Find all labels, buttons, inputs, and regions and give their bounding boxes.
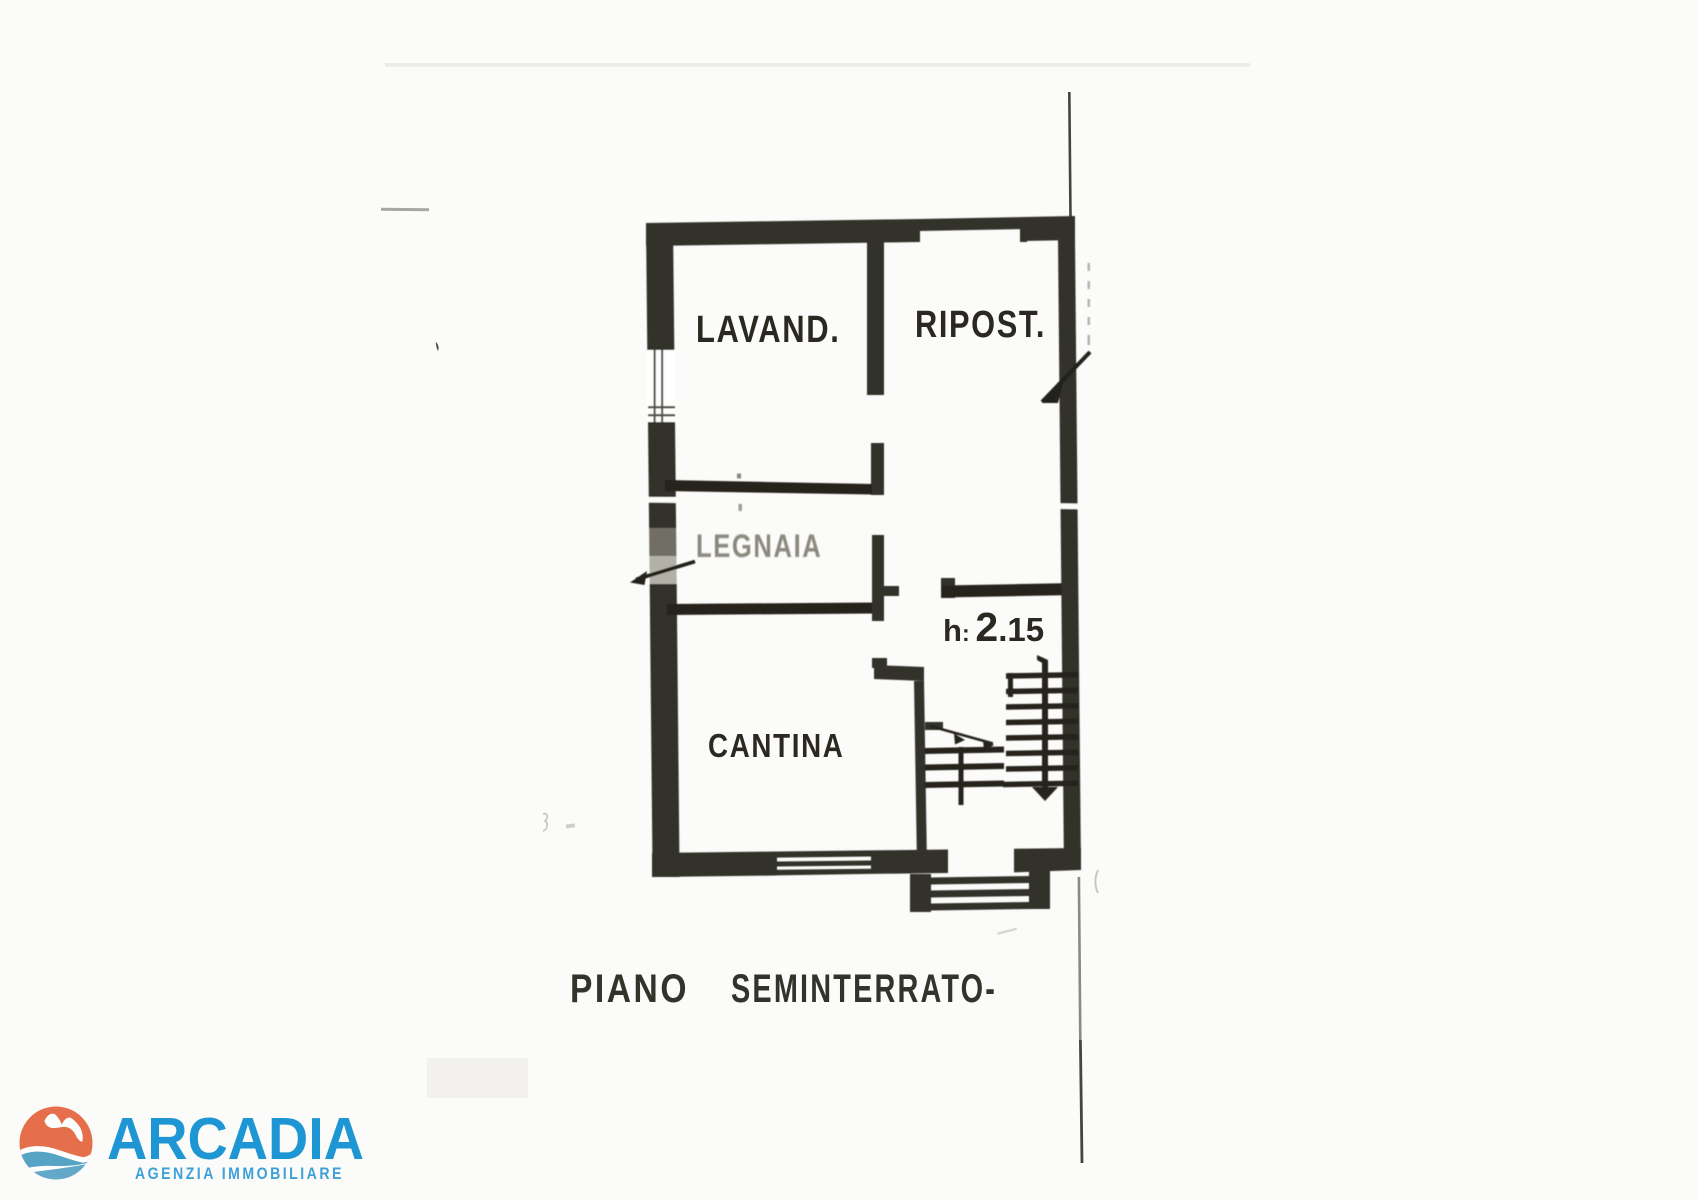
- svg-text:CANTINA: CANTINA: [708, 728, 844, 765]
- svg-text:h: 2.15: h: 2.15: [943, 604, 1044, 650]
- svg-text:AGENZIA IMMOBILIARE: AGENZIA IMMOBILIARE: [135, 1165, 344, 1183]
- svg-text:ARCADIA: ARCADIA: [107, 1107, 364, 1173]
- svg-text:SEMINTERRATO-: SEMINTERRATO-: [731, 966, 997, 1011]
- svg-text:LEGNAIA: LEGNAIA: [696, 529, 822, 564]
- svg-text:PIANO: PIANO: [570, 966, 689, 1010]
- svg-text:RIPOST.: RIPOST.: [915, 304, 1046, 346]
- svg-text:LAVAND.: LAVAND.: [696, 309, 840, 351]
